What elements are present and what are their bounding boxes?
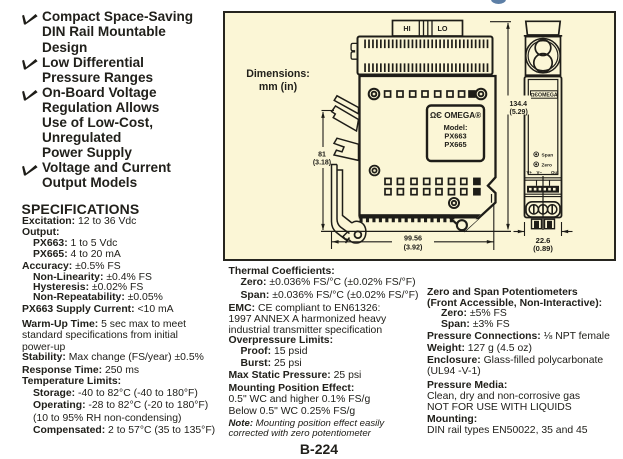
svg-text:ΩЄ OMEGA®: ΩЄ OMEGA® (430, 111, 481, 120)
svg-text:V+: V+ (527, 170, 533, 175)
svg-text:(3.18): (3.18) (313, 160, 331, 167)
svg-text:V−: V− (537, 170, 543, 175)
svg-text:Model:: Model: (444, 123, 468, 132)
svg-text:Zero: Zero (542, 163, 552, 169)
svg-text:134.4: 134.4 (510, 101, 528, 108)
svg-text:99.56: 99.56 (404, 233, 422, 242)
svg-text:HI: HI (403, 24, 410, 33)
svg-text:PX665: PX665 (444, 140, 466, 149)
svg-text:Span: Span (542, 153, 554, 159)
svg-text:LO: LO (438, 24, 448, 33)
svg-text:ΩЄOMEGA: ΩЄOMEGA (530, 93, 558, 99)
svg-text:Out: Out (551, 170, 559, 175)
svg-text:(5.29): (5.29) (510, 109, 528, 116)
svg-text:81: 81 (318, 152, 326, 159)
svg-text:(0.89): (0.89) (533, 244, 553, 253)
svg-text:(3.92): (3.92) (404, 243, 423, 252)
